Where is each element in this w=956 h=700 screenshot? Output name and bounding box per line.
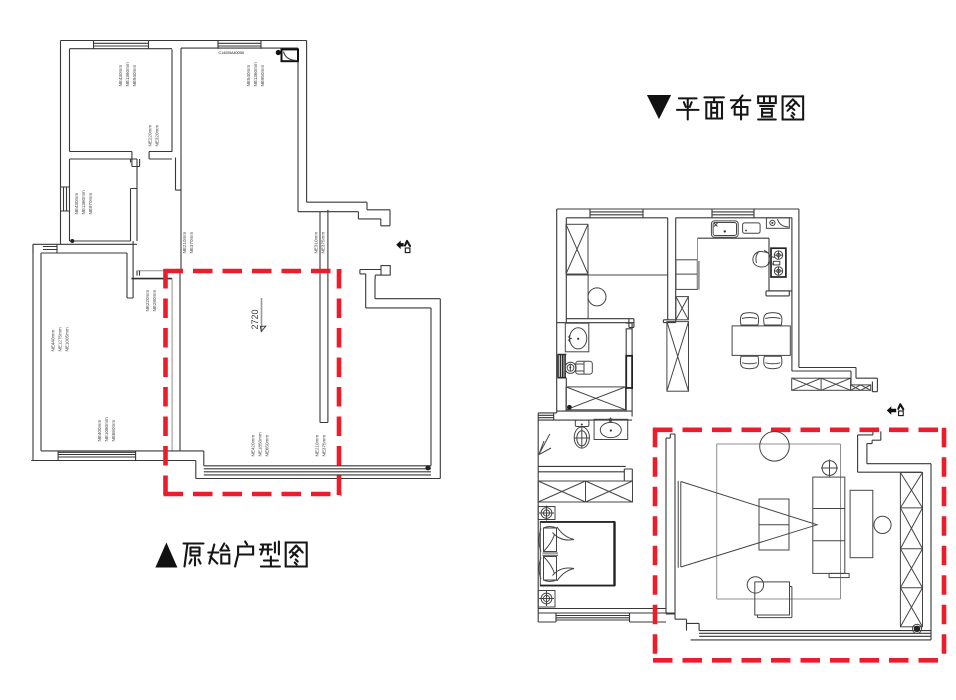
svg-text:NE280mm: NE280mm xyxy=(152,290,157,312)
svg-text:C14005A4005B: C14005A4005B xyxy=(219,51,245,55)
svg-text:NE310mm: NE310mm xyxy=(314,232,319,254)
svg-text:NE1850mm: NE1850mm xyxy=(258,432,263,456)
svg-text:NE210mm: NE210mm xyxy=(182,232,187,254)
svg-text:NE1005mm: NE1005mm xyxy=(65,327,70,351)
svg-text:NE540mm: NE540mm xyxy=(246,65,251,87)
svg-text:NE430mm: NE430mm xyxy=(118,65,123,87)
svg-text:NE370mm: NE370mm xyxy=(189,232,194,254)
svg-text:NE220mm: NE220mm xyxy=(145,290,150,312)
svg-text:NE1360mm: NE1360mm xyxy=(81,190,86,214)
svg-text:NE220mm: NE220mm xyxy=(148,125,153,147)
svg-text:NE970mm: NE970mm xyxy=(88,193,93,215)
svg-text:NE440mm: NE440mm xyxy=(51,330,56,352)
svg-text:NE650mm: NE650mm xyxy=(265,435,270,457)
svg-text:2720: 2720 xyxy=(250,309,260,329)
svg-text:NE375mm: NE375mm xyxy=(321,232,326,254)
svg-text:NE940mm: NE940mm xyxy=(132,65,137,87)
svg-text:NE375mm: NE375mm xyxy=(322,435,327,457)
svg-text:NE400mm: NE400mm xyxy=(97,420,102,442)
svg-text:NE650mm: NE650mm xyxy=(111,420,116,442)
svg-text:NE1360mm: NE1360mm xyxy=(253,62,258,86)
svg-text:NE210mm: NE210mm xyxy=(315,435,320,457)
svg-text:NE430mm: NE430mm xyxy=(74,193,79,215)
svg-text:NE420mm: NE420mm xyxy=(251,435,256,457)
svg-text:NE950mm: NE950mm xyxy=(260,65,265,87)
svg-text:NE1080mm: NE1080mm xyxy=(104,417,109,441)
svg-text:NE1275mm: NE1275mm xyxy=(58,327,63,351)
svg-text:NE1360mm: NE1360mm xyxy=(125,62,130,86)
svg-text:NE320mm: NE320mm xyxy=(155,125,160,147)
